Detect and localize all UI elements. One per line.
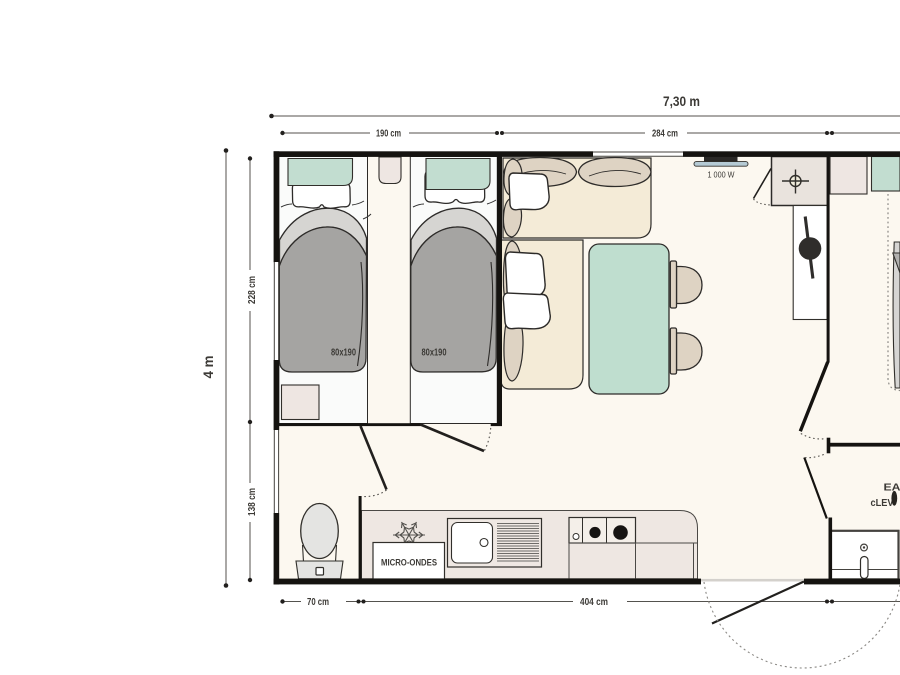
svg-text:7,30 m: 7,30 m: [663, 94, 700, 109]
svg-text:228 cm: 228 cm: [247, 276, 258, 304]
svg-text:138 cm: 138 cm: [247, 488, 258, 516]
svg-text:284 cm: 284 cm: [652, 129, 678, 140]
svg-text:80x190: 80x190: [331, 347, 356, 359]
svg-text:MICRO-ONDES: MICRO-ONDES: [381, 558, 437, 569]
svg-text:EA: EA: [884, 482, 900, 494]
svg-text:404 cm: 404 cm: [580, 597, 608, 608]
svg-text:4 m: 4 m: [201, 356, 216, 379]
svg-text:190 cm: 190 cm: [376, 129, 401, 140]
svg-text:1 000 W: 1 000 W: [708, 171, 735, 180]
svg-text:80x190: 80x190: [422, 347, 447, 359]
svg-text:70 cm: 70 cm: [307, 597, 329, 608]
svg-text:cLEV: cLEV: [871, 497, 894, 509]
